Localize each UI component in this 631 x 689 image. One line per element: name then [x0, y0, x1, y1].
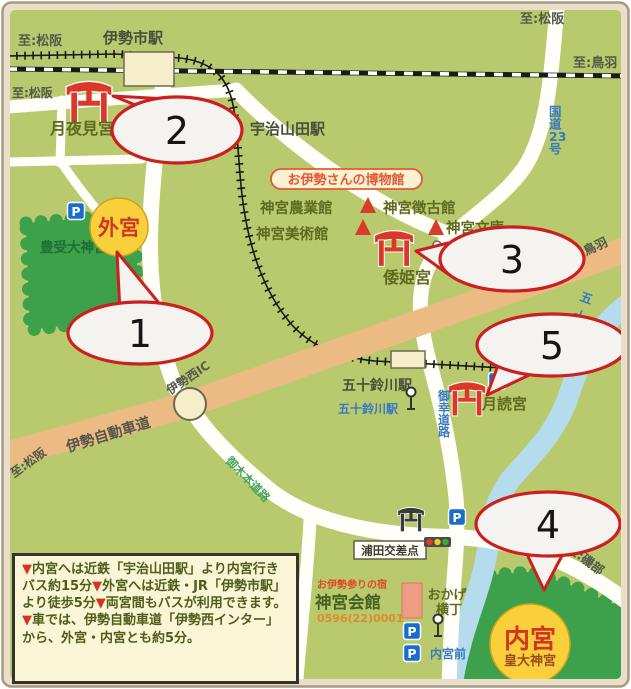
label-tsukiyomi-shrine: 月読宮: [481, 395, 527, 413]
access-info-bus: 両宮間もバスが利用できます。: [106, 596, 287, 611]
access-info-car: ▼車では、伊勢自動車道「伊勢西インター」から、外宮・内宮とも約5分。: [22, 612, 290, 646]
label-tsukiyomi-outer-shrine: 月夜見宮: [49, 119, 114, 138]
access-info-box: ▼内宮へは近鉄「宇治山田駅」より内宮行きバス約15分▼外宮へは近鉄・JR「伊勢市…: [12, 553, 299, 684]
label-bijutsukan: 神宮美術館: [256, 225, 329, 243]
label-isuzugawa-station: 五十鈴川駅: [342, 377, 413, 394]
access-info-train: ▼内宮へは近鉄「宇治山田駅」より内宮行きバス約15分▼外宮へは近鉄・JR「伊勢市…: [22, 561, 290, 612]
callout-1-number: 1: [128, 312, 152, 356]
station-building-isuzugawa: [391, 351, 425, 368]
bullet-icon: ▼: [22, 613, 32, 628]
label-kotai-jingu: 皇大神宮: [504, 653, 556, 669]
bullet-icon: ▼: [96, 596, 106, 611]
geku-marker: 外宮: [90, 198, 148, 256]
bullet-icon: ▼: [92, 579, 102, 594]
label-okage-yokocho-1: おかげ: [427, 587, 467, 603]
label-to-matsusaka-1: 至:松阪: [18, 33, 63, 49]
label-nogyokan: 神宮農業館: [260, 199, 333, 217]
access-info-car-text: 車では、伊勢自動車道「伊勢西インター」から、外宮・内宮とも約5分。: [22, 613, 279, 645]
callout-5-number: 5: [540, 324, 564, 368]
callout-4-number: 4: [536, 503, 560, 547]
parking-icon-kaikan-1: [404, 623, 421, 640]
label-ujiyamada-station: 宇治山田駅: [250, 120, 326, 138]
label-to-matsusaka-2: 至:松阪: [12, 85, 54, 100]
label-naiku-mae-bus-stop: 内宮前: [430, 646, 466, 661]
parking-icon-kaikan-2: [404, 645, 421, 662]
label-to-toba-rail: 至:鳥羽: [573, 55, 617, 71]
museum-badge-label: お伊勢さんの博物館: [287, 172, 404, 188]
interchange-ise-nishi: [174, 388, 206, 420]
parking-icon-geku: [68, 203, 85, 220]
label-geku: 外宮: [98, 216, 140, 240]
label-kaikan-tag: お伊勢参りの宿: [317, 578, 387, 591]
label-chokokan: 神宮徴古館: [383, 199, 456, 217]
station-building-iseshi: [124, 52, 174, 86]
callout-2-number: 2: [165, 109, 189, 153]
label-kaikan-phone: 0596(22)0001: [317, 612, 404, 625]
jingu-kaikan-building: [402, 583, 422, 618]
label-miyuki-road: 御幸道路: [437, 388, 451, 439]
bullet-icon: ▼: [22, 562, 32, 577]
callout-3-number: 3: [500, 238, 524, 282]
label-yamatohime-shrine: 倭姫宮: [383, 268, 431, 287]
traffic-light-icon: [424, 537, 451, 547]
road-grid-horizontal: [8, 159, 142, 162]
label-jingu-kaikan: 神宮会館: [315, 592, 381, 612]
parking-icon-urata: [449, 509, 466, 526]
label-naiku: 内宮: [504, 624, 556, 655]
label-isuzugawa-bus-stop: 五十鈴川駅: [338, 401, 399, 416]
ise-shrine-access-map: P: [0, 0, 631, 689]
label-iseshi-station: 伊勢市駅: [102, 29, 164, 47]
naiku-marker: 内宮 皇大神宮: [490, 604, 570, 684]
callout-2[interactable]: 2: [112, 96, 242, 163]
label-urata-crossing: 浦田交差点: [361, 544, 419, 558]
label-to-matsusaka-3: 至:松阪: [520, 11, 565, 27]
